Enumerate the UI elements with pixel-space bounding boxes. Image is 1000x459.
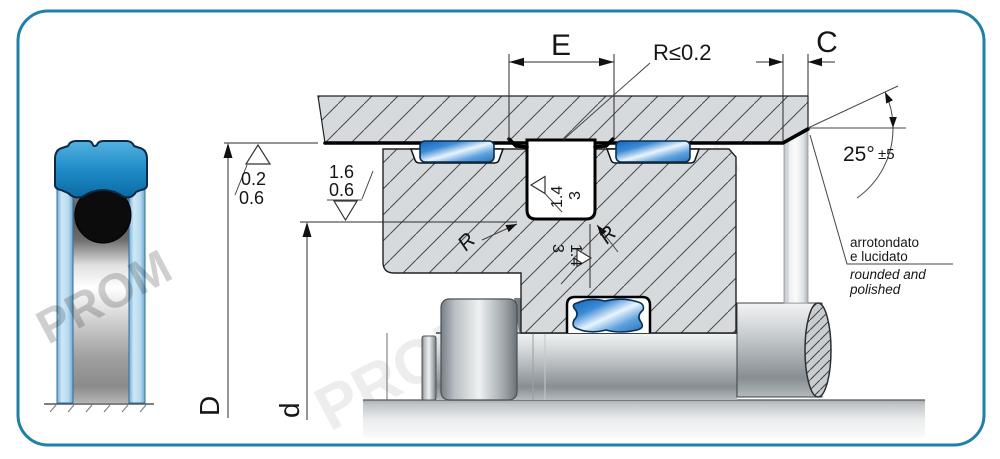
edge-note-it1: arrotondato [850,235,919,250]
roughness-rod-b: 0.6 [329,180,354,200]
label-d: d [274,402,305,418]
rod-end-vertical [784,130,808,303]
label-D: D [194,396,225,416]
label-radius-note: R≤0.2 [653,40,712,65]
label-angle: 25° [843,143,875,166]
label-angle-tolerance: ±5 [878,146,895,163]
edge-note-it2: e lucidato [850,249,908,264]
roughness-bore-a: 0.2 [241,169,266,189]
roughness-groove-bottom-b: 1.4 [567,244,584,266]
edge-note-en2: polished [849,282,901,297]
roughness-groove-side-a: 1.4 [549,186,566,208]
rod-cut-end [805,303,831,397]
washer [422,336,436,400]
roughness-rod-a: 1.6 [329,162,354,182]
right-seal [616,141,690,162]
photo-cap-seal [55,141,147,198]
bottom-seal [573,299,643,332]
roughness-groove-side-b: 3 [567,191,584,200]
roughness-groove-bottom-a: 3 [549,244,566,253]
housing-bore-section [318,96,808,143]
label-E: E [551,29,571,62]
roughness-bore-b: 0.6 [239,188,264,208]
label-C: C [816,26,838,59]
base-cylinder [363,400,925,438]
left-seal [420,141,494,162]
technical-drawing-svg: PROM PROM PROM [0,0,1000,459]
seal-installation-diagram: PROM PROM PROM [0,0,1000,459]
lock-nut [441,299,517,400]
edge-note-en1: rounded and [850,267,926,282]
